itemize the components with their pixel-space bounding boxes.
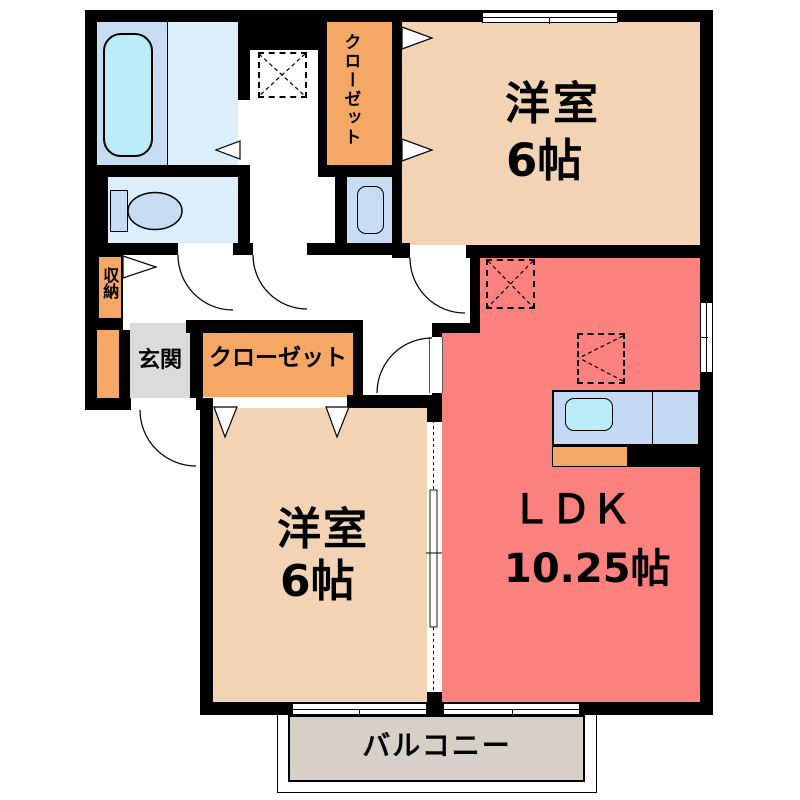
western-room-top-size: 6帖 (506, 137, 582, 186)
wall-segment (190, 320, 203, 408)
storage-door-marker-triangle (123, 256, 156, 278)
closet-bottom-label: クローゼット (203, 346, 353, 371)
wall-segment (250, 22, 318, 50)
ldk-door-arc (377, 338, 432, 393)
wall-segment (392, 245, 410, 258)
entrance-door-opening (131, 398, 196, 410)
window-top (482, 12, 618, 23)
entrance-porch (97, 330, 119, 398)
western-room-bottom-size: 6帖 (280, 558, 355, 606)
storage-label: 収納 (101, 267, 118, 299)
wall-segment (318, 22, 327, 177)
kitchen-lower-cabinet (552, 446, 628, 467)
ldk-label: ＬＤＫ (511, 489, 631, 532)
wall-segment (200, 398, 213, 715)
wall-segment (470, 245, 480, 327)
room-partition-sliding-door (427, 408, 442, 692)
kitchen-sink (565, 398, 613, 431)
wall-segment (318, 165, 402, 177)
window-right (700, 302, 713, 373)
wall-segment (119, 330, 130, 398)
window-bottom-bedroom (292, 703, 427, 715)
bedroom-top-door-opening (410, 245, 466, 258)
bathtub (103, 33, 153, 157)
wall-segment (85, 10, 713, 22)
wall-segment (97, 243, 178, 255)
wall-segment (85, 318, 123, 330)
entrance-door-arc (140, 410, 196, 466)
washroom-door-arc (253, 255, 307, 309)
wall-segment (85, 10, 97, 410)
wall-segment (186, 320, 363, 333)
bathroom-drying-area-floor (167, 22, 238, 165)
wall-segment (427, 395, 442, 422)
ldk-door-leaf (429, 337, 443, 393)
wall-segment (97, 177, 108, 243)
wall-segment (353, 333, 363, 397)
closet-top-label: クローゼット (341, 33, 359, 147)
refrigerator-space (577, 333, 625, 384)
washstand-basin (357, 186, 384, 234)
washing-machine-space (258, 52, 307, 98)
balcony-label: バルコニー (277, 731, 597, 761)
wall-segment (466, 245, 713, 258)
toilet-door-opening (178, 243, 233, 255)
ldk-equipment-space (486, 259, 535, 309)
wall-segment (238, 22, 250, 100)
wall-segment (432, 323, 480, 333)
kitchen-counter-end-block (628, 446, 700, 467)
wall-segment (427, 692, 442, 715)
washroom-door-opening (253, 243, 307, 255)
kitchen-counter-divider (652, 392, 653, 444)
entrance-label: 玄関 (130, 349, 190, 373)
wall-segment (335, 177, 347, 243)
wall-segment (238, 177, 250, 243)
western-room-bottom-label: 洋室 (277, 506, 369, 554)
ldk-size: 10.25帖 (504, 548, 671, 591)
western-room-bottom-floor (213, 408, 427, 702)
bedroom-top-door-arc (410, 258, 465, 313)
toilet-door-arc (178, 255, 233, 310)
floor-plan: 洋室 6帖 洋室 6帖 ＬＤＫ 10.25帖 クローゼット クローゼット 玄関 … (0, 0, 800, 800)
wall-segment (85, 398, 131, 410)
wall-segment (97, 165, 250, 177)
wall-segment (233, 243, 253, 255)
toilet-tank (110, 190, 128, 232)
window-bottom-ldk (443, 703, 580, 715)
western-room-top-label: 洋室 (505, 80, 601, 129)
wall-segment (392, 22, 402, 258)
